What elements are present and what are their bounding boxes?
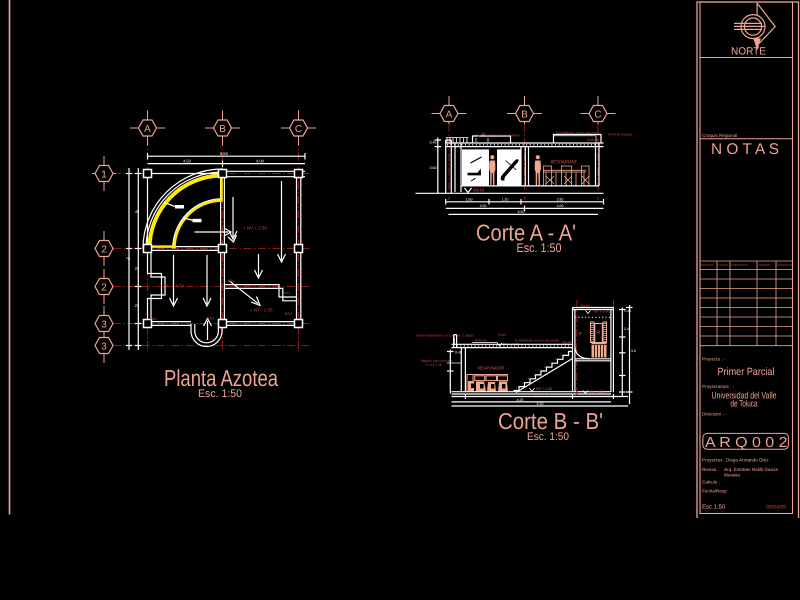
svg-text:A: A bbox=[144, 124, 151, 135]
svg-text:4.00: 4.00 bbox=[256, 159, 265, 164]
svg-text:Impermeabilizante en caliente: Impermeabilizante en caliente 2 capas bbox=[416, 333, 474, 337]
svg-text:1: 1 bbox=[101, 170, 107, 181]
svg-text:0.45: 0.45 bbox=[430, 141, 437, 145]
svg-text:4.25: 4.25 bbox=[517, 398, 524, 402]
svg-text:9: 9 bbox=[561, 353, 563, 357]
svg-text:Esc. 1:50: Esc. 1:50 bbox=[527, 431, 569, 443]
svg-text:A R Q 0 0 2: A R Q 0 0 2 bbox=[705, 435, 788, 451]
svg-text:6: 6 bbox=[544, 365, 546, 369]
svg-text:Pretil de tabique: Pretil de tabique bbox=[608, 133, 633, 137]
svg-text:0.45: 0.45 bbox=[455, 351, 462, 355]
svg-text:NORTE: NORTE bbox=[731, 46, 766, 58]
svg-text:1: 1 bbox=[516, 385, 518, 389]
svg-text:A: A bbox=[446, 110, 453, 121]
svg-text:Croquis Regional: Croquis Regional bbox=[702, 133, 737, 138]
svg-text:Diego Armando Ortiz: Diego Armando Ortiz bbox=[726, 458, 769, 463]
svg-text:3.0: 3.0 bbox=[631, 349, 636, 353]
svg-text:8.50: 8.50 bbox=[518, 210, 525, 214]
svg-text:Esc. 1:50: Esc. 1:50 bbox=[198, 388, 242, 400]
svg-text:DESAYUNADOR: DESAYUNADOR bbox=[478, 366, 505, 371]
svg-text:BAJ: BAJ bbox=[228, 279, 235, 283]
svg-text:2.80: 2.80 bbox=[557, 198, 564, 202]
svg-text:BAJA: BAJA bbox=[581, 304, 591, 308]
svg-text:4.50: 4.50 bbox=[480, 204, 487, 208]
svg-text:Calculo :: Calculo : bbox=[702, 480, 720, 485]
svg-text:Primer Parcial: Primer Parcial bbox=[718, 366, 775, 378]
svg-text:Relleno: Relleno bbox=[475, 338, 487, 342]
svg-text:+ NV + 4.50: + NV + 4.50 bbox=[160, 284, 185, 289]
svg-text:1.50: 1.50 bbox=[466, 198, 473, 202]
svg-text:Arq. Esteban Ratilli Garcia: Arq. Esteban Ratilli Garcia bbox=[724, 467, 778, 472]
svg-text:+ NV + 2.50: + NV + 2.50 bbox=[243, 226, 268, 231]
svg-text:Enladrillado comun asentado: Enladrillado comun asentado bbox=[515, 338, 559, 342]
svg-text:+ NT - 1.50: + NT - 1.50 bbox=[250, 308, 273, 313]
svg-text:RESTAURANT: RESTAURANT bbox=[551, 160, 578, 166]
svg-text:7 x 14 x 28: 7 x 14 x 28 bbox=[425, 363, 442, 367]
svg-text:22: 22 bbox=[135, 303, 140, 308]
svg-text:R: R bbox=[597, 330, 601, 336]
svg-text:3: 3 bbox=[101, 320, 107, 331]
svg-text:4: 4 bbox=[533, 373, 535, 377]
svg-text:NV + 1.50: NV + 1.50 bbox=[536, 387, 552, 391]
svg-text:C: C bbox=[295, 124, 302, 135]
svg-text:FIRMAS: FIRMAS bbox=[759, 263, 770, 267]
svg-text:Relleno: Relleno bbox=[587, 138, 599, 142]
svg-text:Proyectamos : -: Proyectamos : - bbox=[702, 384, 735, 389]
svg-text:Direccion : -: Direccion : - bbox=[702, 412, 727, 417]
svg-text:2: 2 bbox=[101, 283, 107, 294]
svg-text:BAJ: BAJ bbox=[150, 317, 157, 321]
svg-text:5: 5 bbox=[539, 369, 541, 373]
svg-text:C: C bbox=[594, 110, 601, 121]
svg-text:BAJA: BAJA bbox=[473, 188, 484, 193]
svg-text:22: 22 bbox=[135, 266, 140, 271]
svg-text:N O T A S: N O T A S bbox=[711, 141, 779, 158]
svg-text:PARTIDA: PARTIDA bbox=[701, 263, 714, 267]
svg-text:BAJ: BAJ bbox=[283, 291, 290, 295]
svg-text:0.45: 0.45 bbox=[625, 309, 632, 313]
svg-text:CONCEPTO: CONCEPTO bbox=[731, 263, 749, 267]
svg-text:6.10: 6.10 bbox=[537, 402, 544, 406]
svg-text:NV + 6.00: NV + 6.00 bbox=[594, 309, 610, 313]
svg-text:4.00: 4.00 bbox=[557, 204, 564, 208]
svg-text:3.60: 3.60 bbox=[430, 166, 437, 170]
svg-text:FECHA: FECHA bbox=[718, 263, 728, 267]
svg-text:8: 8 bbox=[555, 357, 557, 361]
svg-text:Fecha/Resp: Fecha/Resp bbox=[702, 489, 727, 494]
svg-text:BAJ: BAJ bbox=[207, 317, 214, 321]
svg-text:Pretil: Pretil bbox=[498, 333, 506, 337]
svg-text:3: 3 bbox=[101, 342, 107, 353]
svg-text:NV - 0.07: NV - 0.07 bbox=[590, 390, 605, 394]
svg-text:7: 7 bbox=[550, 361, 552, 365]
svg-text:4.50: 4.50 bbox=[183, 159, 192, 164]
svg-text:B: B bbox=[219, 124, 226, 135]
svg-text:ACUERDO: ACUERDO bbox=[777, 263, 793, 267]
svg-text:Revisa :: Revisa : bbox=[702, 467, 719, 472]
svg-text:09/04/05: 09/04/05 bbox=[766, 505, 786, 511]
svg-text:Morales: Morales bbox=[724, 473, 741, 478]
svg-text:8.50: 8.50 bbox=[220, 151, 229, 156]
svg-text:1.20: 1.20 bbox=[502, 198, 509, 202]
svg-text:2: 2 bbox=[101, 245, 107, 256]
svg-text:Esc. 1:50: Esc. 1:50 bbox=[517, 241, 562, 255]
svg-text:45: 45 bbox=[135, 209, 140, 214]
svg-text:2: 2 bbox=[522, 381, 524, 385]
svg-text:Proyectos :: Proyectos : bbox=[702, 458, 725, 463]
svg-text:Esc 1:50: Esc 1:50 bbox=[702, 504, 726, 511]
svg-text:75: 75 bbox=[126, 256, 131, 261]
svg-text:3: 3 bbox=[528, 377, 530, 381]
svg-text:Proyecto : -: Proyecto : - bbox=[702, 357, 726, 362]
svg-text:2.4: 2.4 bbox=[624, 327, 629, 331]
svg-text:B: B bbox=[521, 110, 528, 121]
svg-text:de Toluca: de Toluca bbox=[731, 398, 758, 408]
svg-text:BAJ: BAJ bbox=[285, 312, 292, 316]
